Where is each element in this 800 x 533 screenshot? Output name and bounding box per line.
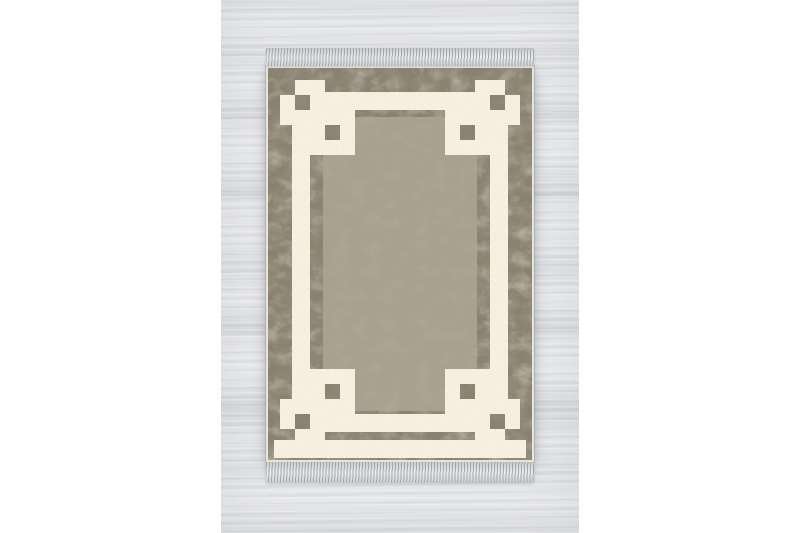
rug-fringe-bottom [266,462,534,482]
product-photo wood-floor [221,0,579,533]
rug-design [266,66,534,462]
rug-fringe-top [266,48,534,66]
rug [266,48,534,482]
page-background [0,0,800,533]
